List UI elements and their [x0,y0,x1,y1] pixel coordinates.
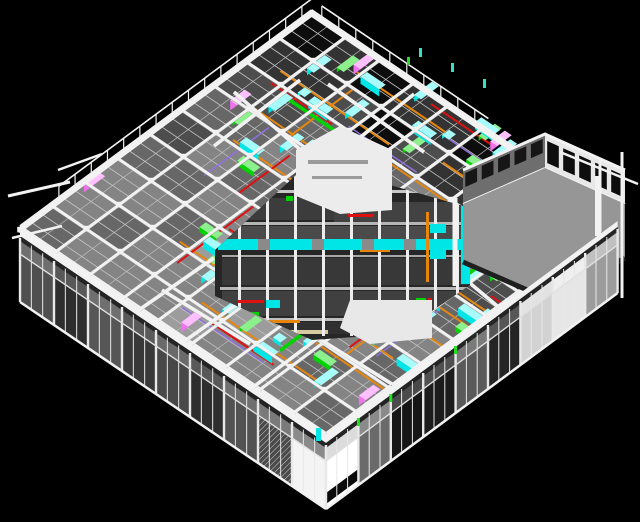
bim-model-rendering [0,0,640,522]
cad-3d-viewport[interactable] [0,0,640,522]
